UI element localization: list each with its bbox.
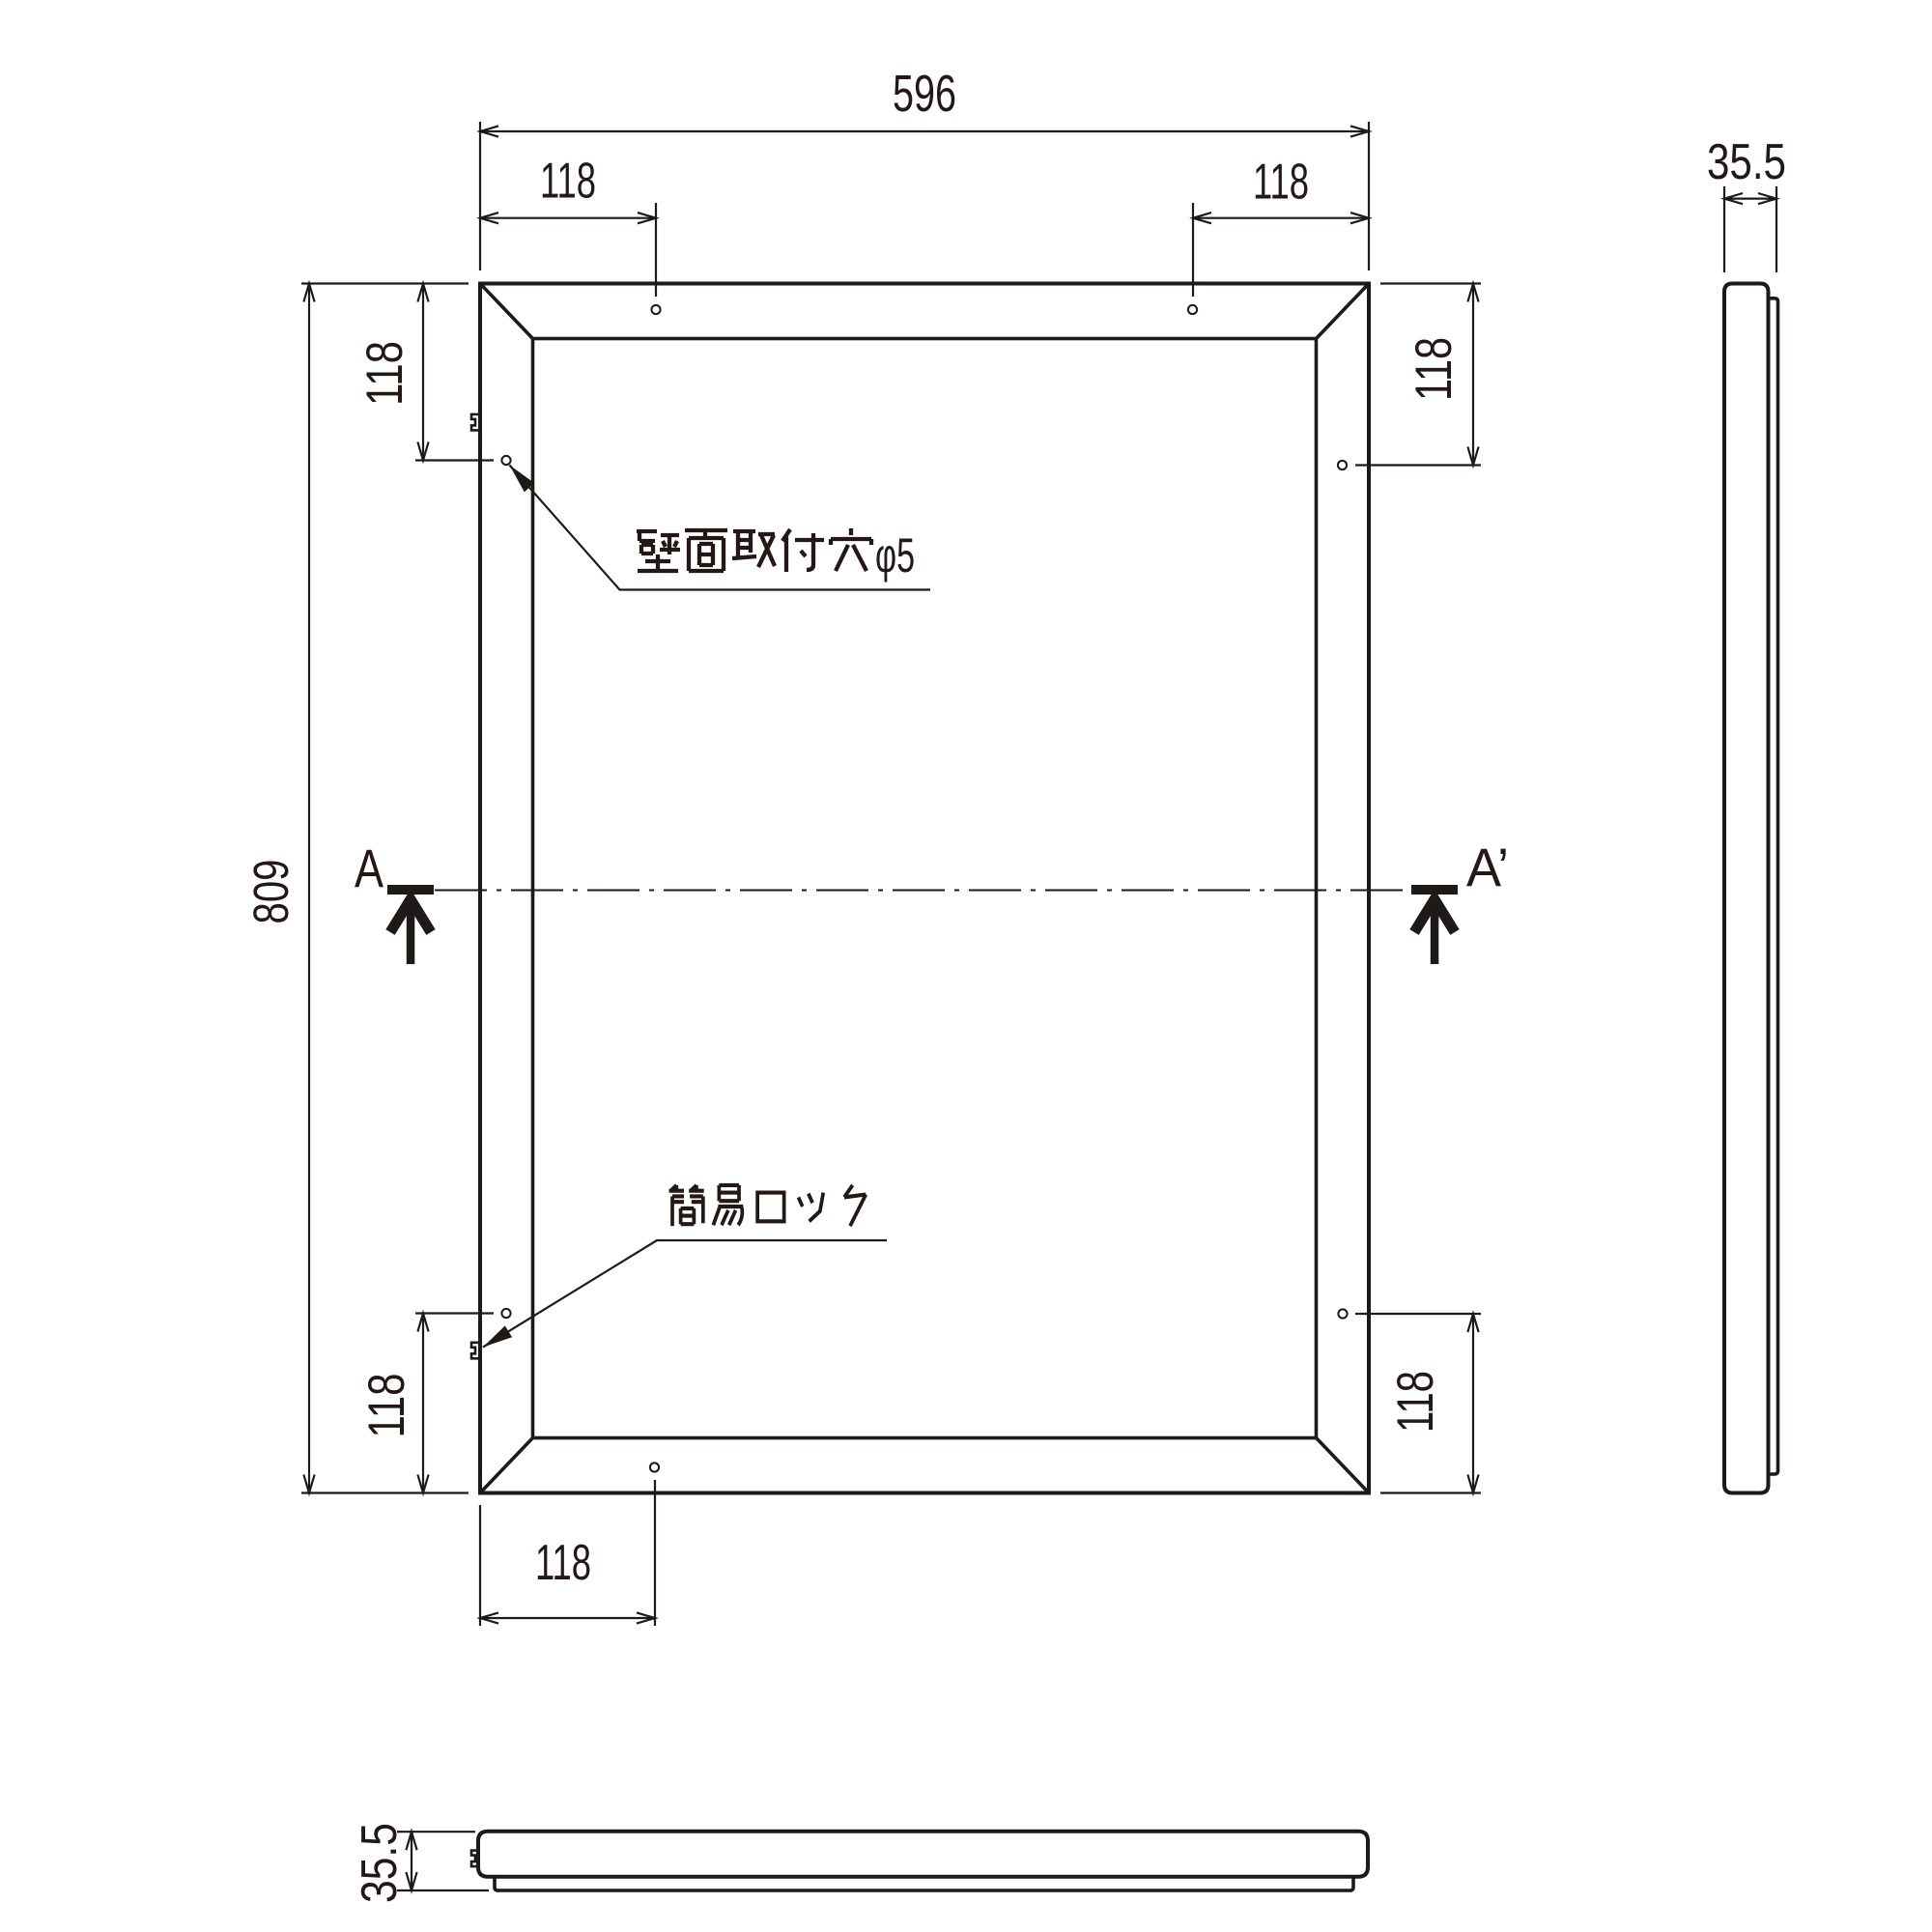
svg-text:35.5: 35.5 xyxy=(1707,134,1786,190)
svg-text:118: 118 xyxy=(535,1535,591,1591)
svg-text:118: 118 xyxy=(1406,337,1463,401)
svg-text:118: 118 xyxy=(356,341,413,406)
svg-text:596: 596 xyxy=(893,65,956,123)
svg-text:118: 118 xyxy=(358,1374,415,1438)
svg-text:809: 809 xyxy=(243,860,298,924)
svg-text:35.5: 35.5 xyxy=(352,1823,408,1903)
svg-text:118: 118 xyxy=(540,154,596,210)
svg-text:118: 118 xyxy=(1253,155,1309,211)
svg-text:A’: A’ xyxy=(1466,837,1509,897)
svg-text:A: A xyxy=(355,838,384,898)
svg-text:φ5: φ5 xyxy=(875,528,915,582)
svg-text:118: 118 xyxy=(1387,1371,1444,1433)
